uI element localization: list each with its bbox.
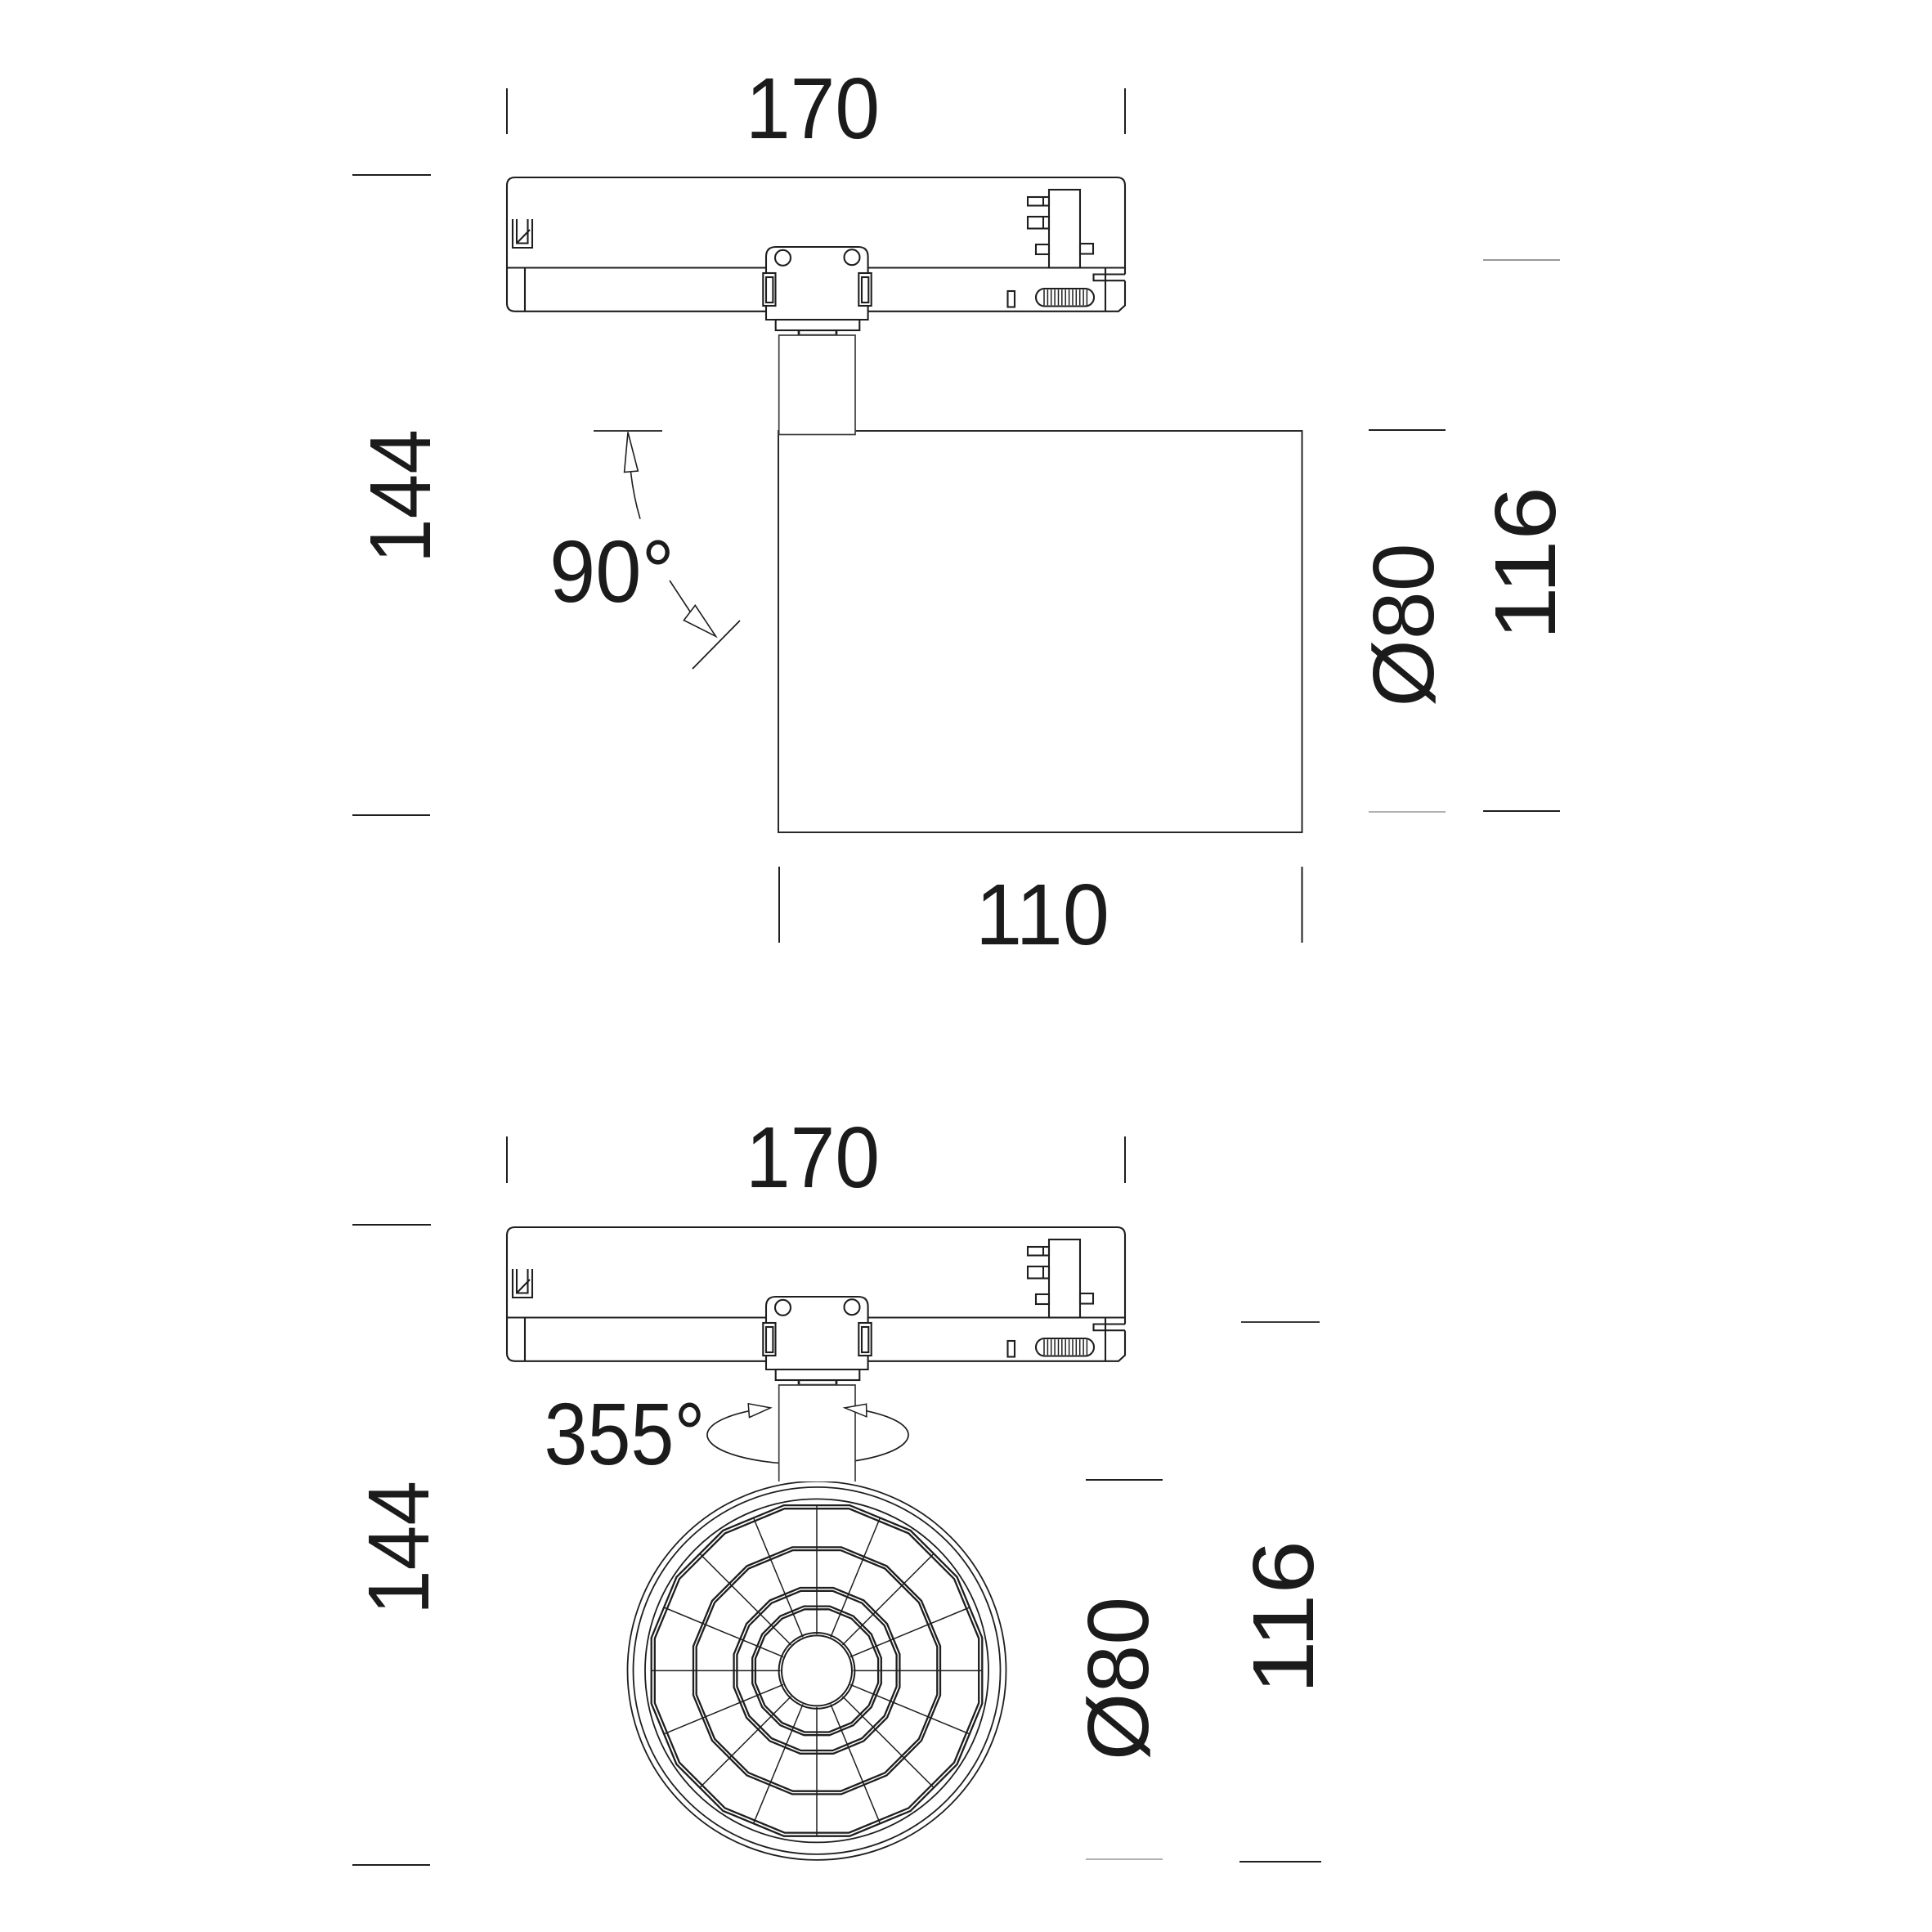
svg-text:355°: 355° (545, 1384, 706, 1483)
svg-text:144: 144 (351, 1481, 447, 1615)
svg-text:110: 110 (975, 867, 1109, 963)
svg-text:170: 170 (746, 61, 880, 157)
svg-text:144: 144 (352, 429, 449, 563)
svg-text:90°: 90° (549, 522, 675, 621)
svg-text:Ø80: Ø80 (1070, 1597, 1167, 1760)
svg-text:116: 116 (1477, 486, 1574, 640)
svg-text:116: 116 (1235, 1540, 1332, 1694)
svg-text:170: 170 (746, 1109, 880, 1206)
svg-text:Ø80: Ø80 (1356, 543, 1452, 706)
